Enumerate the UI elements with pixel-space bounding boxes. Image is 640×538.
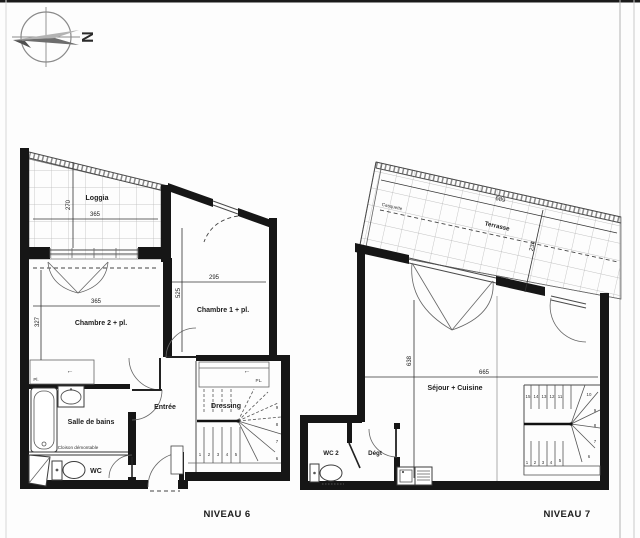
terrasse-floor	[359, 162, 621, 299]
bathroom-sink	[58, 386, 84, 407]
stair-number: 3	[542, 460, 545, 465]
label-cloison: Cloison démontable	[58, 445, 99, 450]
dim-loggia-h: 270	[66, 199, 72, 210]
stair-number: 7	[276, 439, 279, 444]
label-salle-de-bains: Salle de bains	[68, 419, 115, 426]
label-chambre2: Chambre 2 + pl.	[75, 320, 127, 327]
niveau6-plan: ← Pl. ← PL.	[20, 148, 290, 520]
placard-dressing-arrow: ←	[244, 368, 251, 375]
stair-number: 4	[550, 460, 553, 465]
north-label: N	[78, 31, 95, 43]
stair-number: 5	[235, 452, 238, 457]
stair-number: 2	[208, 452, 211, 457]
stair-number: 12	[550, 394, 555, 399]
stair-number: 8	[276, 422, 279, 427]
chambre1-window	[204, 201, 238, 242]
stair-number: 10	[587, 392, 592, 397]
floor-plan-canvas: N	[0, 0, 640, 538]
stair-number: 11	[558, 394, 563, 399]
kitchen-sink	[397, 467, 432, 485]
bathtub	[31, 388, 57, 452]
dim-chambre1-h: 525	[176, 287, 182, 298]
stair-number: 7	[594, 439, 597, 444]
chambre2-french-doors	[48, 262, 108, 293]
placard-sdb-label: Pl.	[33, 377, 38, 382]
dim-sejour-h: 638	[407, 355, 413, 366]
label-loggia: Loggia	[86, 195, 109, 202]
dim-chambre2-w: 365	[91, 299, 102, 305]
label-degagement: Dégt	[368, 450, 382, 457]
niveau6-title: NIVEAU 6	[203, 509, 250, 520]
stair-number: 1	[199, 452, 202, 457]
dim-sejour-w: 665	[479, 370, 490, 376]
stair-number: 3	[217, 452, 220, 457]
stair-number: 2	[534, 460, 537, 465]
stair-number: 15	[526, 394, 531, 399]
dim-chambre1-w: 295	[209, 275, 220, 281]
dim-chambre2-h: 327	[35, 316, 41, 327]
label-dressing: Dressing	[211, 403, 241, 410]
placard-dressing-label: PL.	[256, 378, 263, 383]
dim-loggia-w: 365	[90, 212, 101, 218]
label-wc2: WC 2	[323, 450, 339, 457]
floor-plan-page: N	[0, 0, 640, 538]
sejour-terrace-door	[550, 296, 586, 342]
placard-dressing: ← PL.	[199, 362, 269, 387]
stair-number: 9	[276, 405, 279, 410]
stair-number: 4	[226, 452, 229, 457]
niveau7-title: NIVEAU 7	[543, 509, 590, 520]
label-sejour: Séjour + Cuisine	[427, 385, 482, 392]
stair-number: 6	[276, 456, 279, 461]
stair-number: 6	[588, 454, 591, 459]
stair-number: 14	[534, 394, 539, 399]
stair-number: 13	[542, 394, 547, 399]
stair-number: 9	[594, 408, 597, 413]
niveau6-doors	[109, 328, 196, 491]
niveau7-doors	[349, 429, 397, 468]
stair-number: 5	[559, 458, 562, 463]
compass: N	[12, 7, 95, 67]
label-wc: WC	[90, 468, 102, 475]
stairs-niveau7: 1 2 3 4 5 6 7 8 9 10 11 12 13 14 15	[524, 385, 600, 475]
placard-sdb: ← Pl.	[30, 360, 94, 384]
label-entree: Entrée	[154, 404, 176, 411]
label-chambre1: Chambre 1 + pl.	[197, 307, 249, 314]
corner-cabinet	[29, 455, 50, 486]
stair-number: 1	[526, 460, 529, 465]
stairs-niveau6: 1 2 3 4 5 6 7 8 9	[188, 361, 281, 472]
placard-sdb-arrow: ←	[67, 368, 74, 375]
niveau7-plan: 1 2 3 4 5 6 7 8 9 10 11 12 13 14 15 689 …	[300, 162, 621, 520]
toilet-wc	[52, 461, 85, 480]
